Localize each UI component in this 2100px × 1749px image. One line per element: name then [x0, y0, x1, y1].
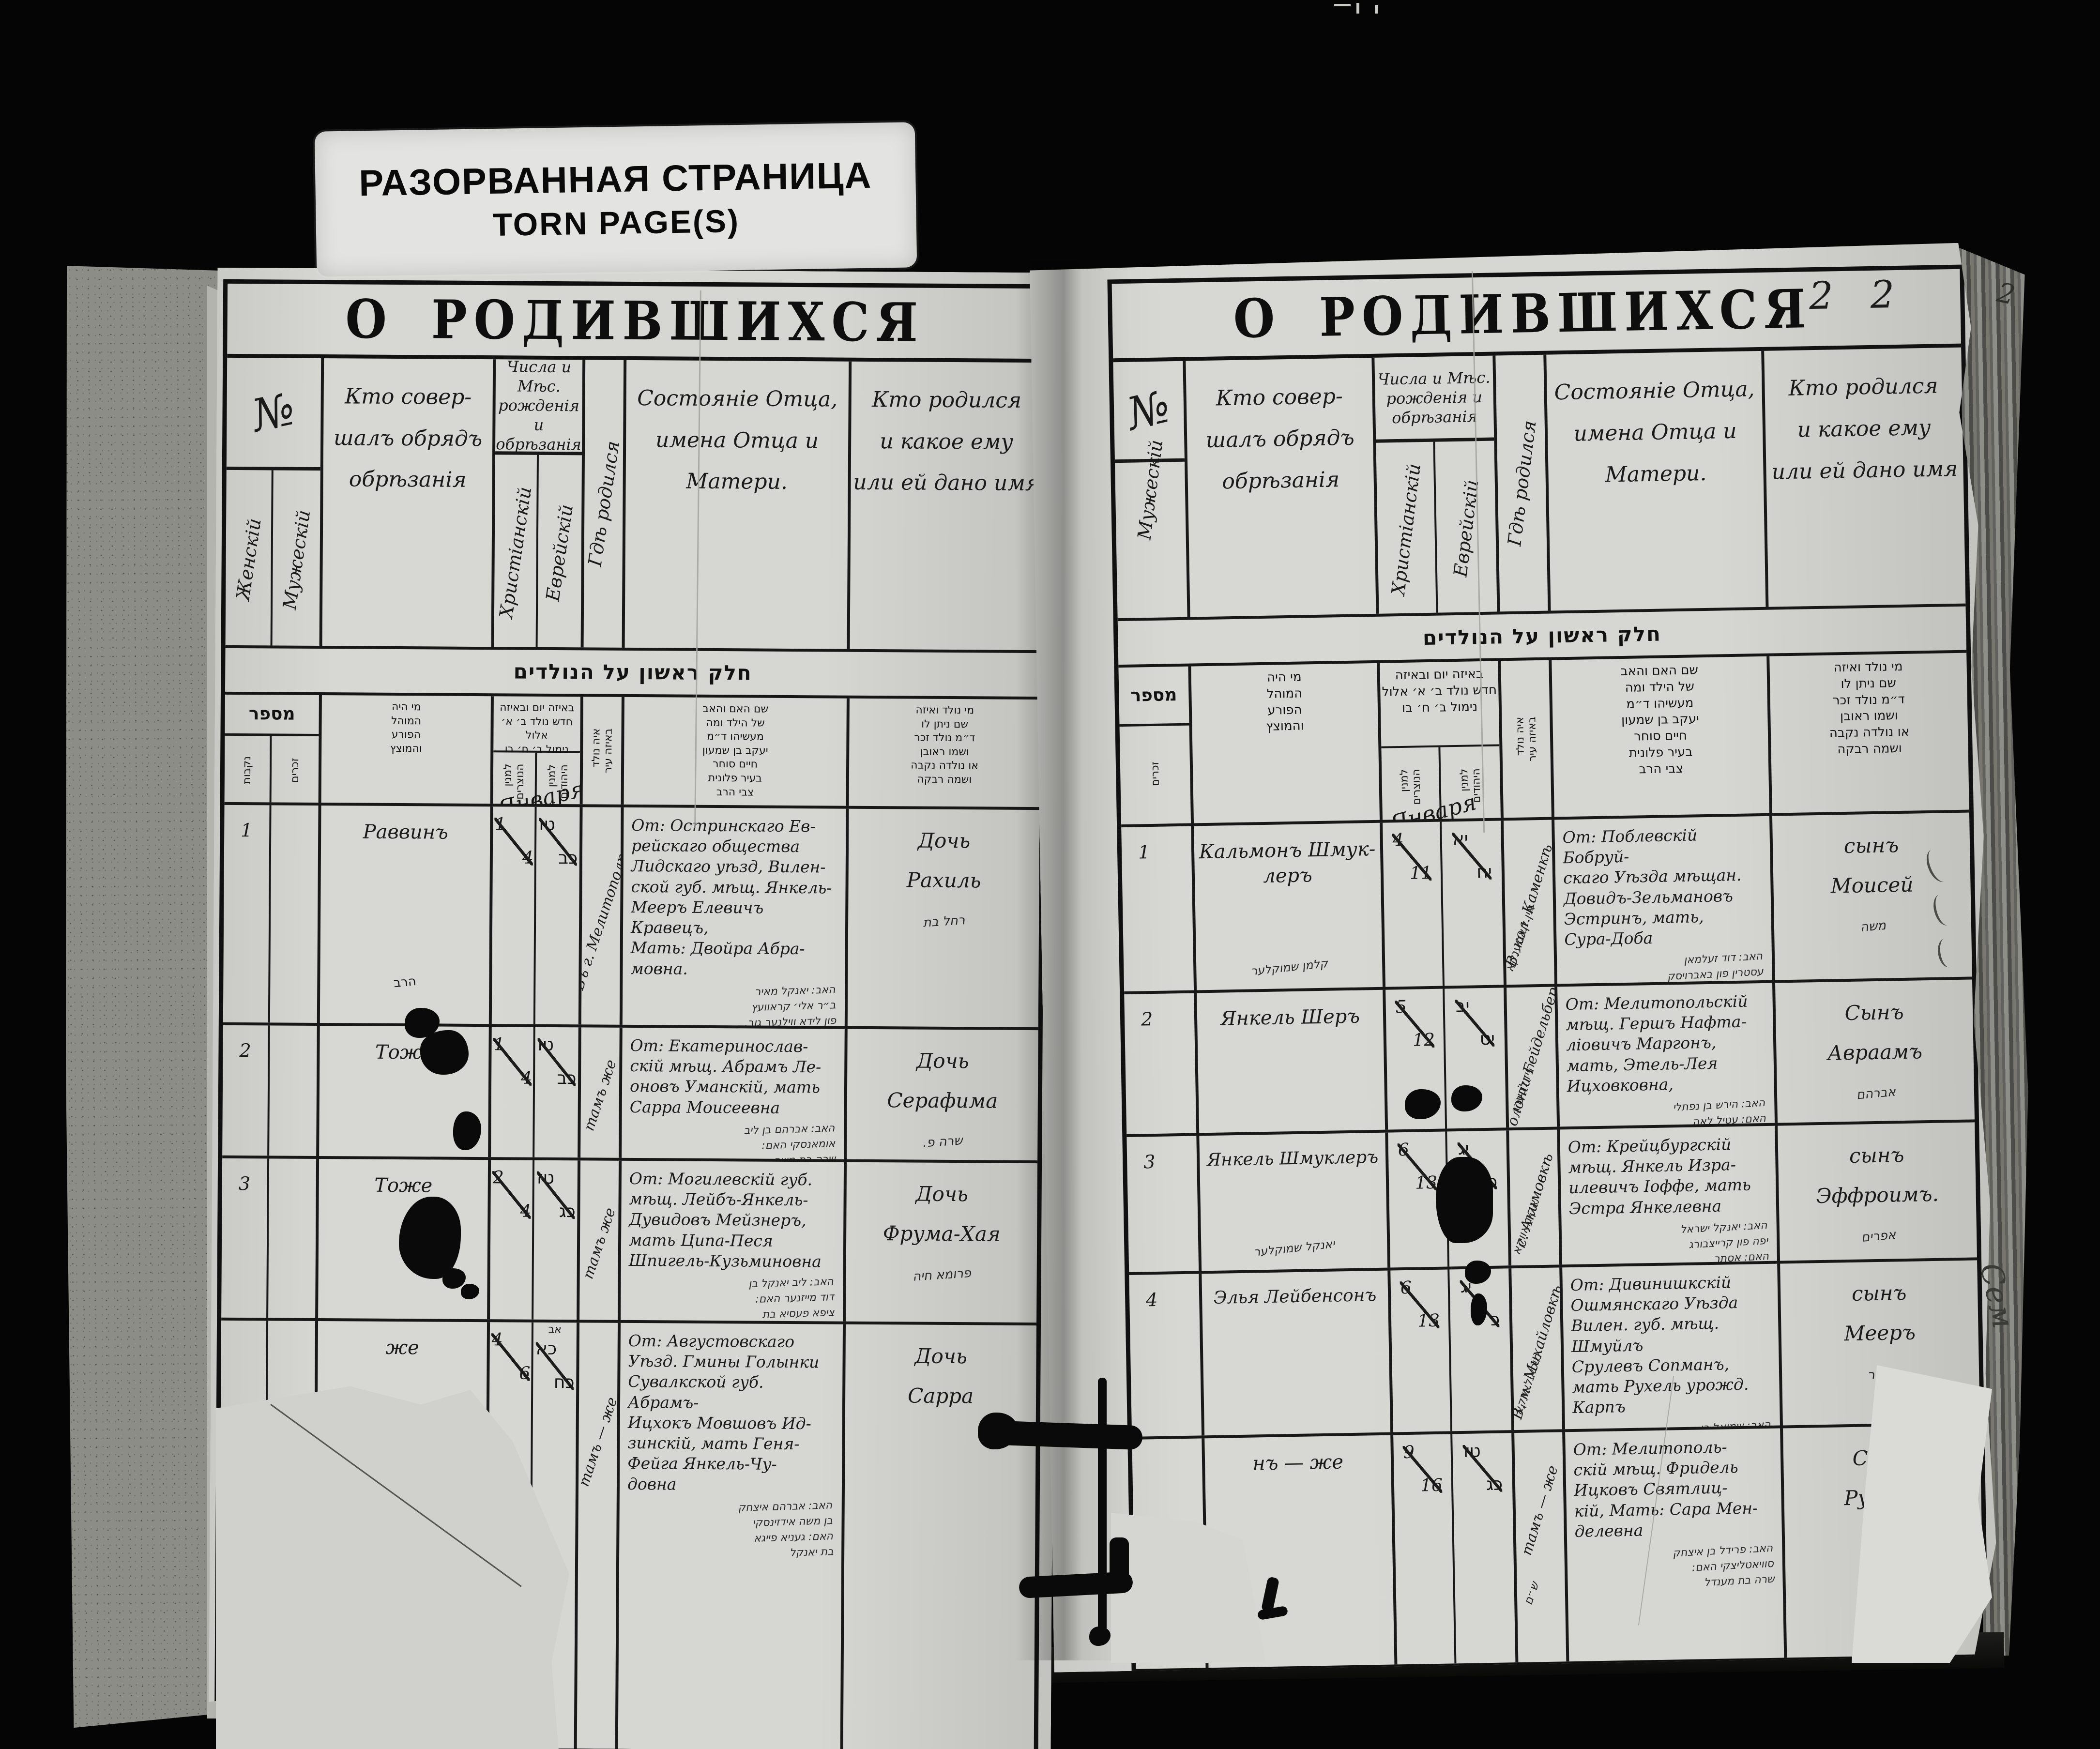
number-symbol: № [248, 383, 300, 442]
torn-page-label-russian: РАЗОРВАННАЯ СТРАНИЦА [359, 154, 872, 204]
parents-entry: От: Мелитополь- скій мѣщ. Фридель Ицковъ… [1565, 1429, 1782, 1544]
hebrew-female: נקבות [241, 756, 253, 784]
jewish-date: טזכג [1461, 1441, 1504, 1496]
child-name: Сынъ Авраамъ [1775, 979, 1974, 1074]
right-row-3: 3 Янкель Шмуклеръ יאנקל שמוקלער 613 יגכ … [1126, 1122, 1977, 1275]
birthplace: Въ г. Мелитополѣ [581, 848, 624, 992]
column-parents: Состояніе Отца, имена Отца и Матери. [1546, 351, 1768, 611]
column-male: Мужескій [1134, 439, 1167, 541]
column-dates: Числа и Мѣс. рожденія и обрѣзанія Христі… [494, 359, 586, 647]
column-performer: Кто совер- шалъ обрядъ обрѣзанія [322, 358, 496, 647]
circumciser: Тоже [319, 1159, 488, 1199]
column-christian-date: Христіанскій [495, 486, 535, 620]
child-name: Дочь Сарра [845, 1324, 1036, 1416]
column-child-name: Кто родился и какое ему или ей дано имя [850, 361, 1043, 650]
left-row-2: 2 Тоже 14 טוכב тамъ же От: Екатеринослав… [222, 1025, 1038, 1163]
column-dates: Числа и Мѣс. рожденія и обрѣзанія Христі… [1374, 355, 1500, 613]
child-name: Дочь Фрума-Хая [846, 1162, 1037, 1254]
row-number: 2 [223, 1025, 268, 1062]
circumciser: же [318, 1321, 487, 1361]
torn-page-label-english: TORN PAGE(S) [492, 202, 740, 243]
jewish-date: טוכב [535, 1035, 578, 1090]
parents-entry: От: Крейцбургскій мѣщ. Янкель Изра- илев… [1560, 1126, 1776, 1221]
scan-artifact [1375, 5, 1378, 14]
page-number: 2 2 [1809, 273, 1907, 319]
christian-date: 613 [1396, 1140, 1439, 1194]
right-register-table: О РОДИВШИХСЯ 2 2 № Мужескій Кто совер- ш… [1107, 265, 1988, 1673]
scan-artifact [1334, 4, 1351, 6]
right-row-1: 1 Кальмонъ Шмук- леръ קלמן שמוקלער 411 י… [1121, 813, 1972, 995]
column-christian-date: Христіанскій [1387, 462, 1425, 596]
row-number: 3 [222, 1158, 267, 1195]
hebrew-column-dates: באיזה יום ובאיזה חדש נולד ב׳ א׳ אלול נימ… [1380, 661, 1504, 820]
birthplace-yiddish: ש״ם [1520, 1580, 1543, 1607]
parents-entry-yiddish: האב: פרידל בן איצחק סוויאטליצקי האם: שרה… [1567, 1536, 1784, 1600]
parents-entry-yiddish: האב: אברהם איצחק בן משה אידזינסקי האם: ג… [619, 1494, 843, 1568]
parents-entry: От: Остринскаго Ев- рейскаго общества Ли… [623, 807, 846, 982]
scan-artifact [1356, 3, 1359, 14]
circumciser-signature: קלמן שמוקלער [1250, 955, 1329, 980]
left-row-3: 3 Тоже 24 טזכג тамъ же От: Могилевскій г… [221, 1158, 1037, 1325]
circumciser: Раввинъ [321, 806, 490, 845]
column-jewish-date: Еврейскій [542, 503, 578, 603]
parents-entry: От: Екатеринослав- скій мѣщ. Абрамъ Ле- … [622, 1028, 845, 1121]
row-number: 4 [1129, 1274, 1199, 1311]
christian-date: 46 [489, 1330, 532, 1384]
parents-entry-yiddish: האב: ליב יאנקל בן דוד מייזנער האם: ציפא … [621, 1270, 844, 1322]
hebrew-column-number: מספר נקבות זכרים [225, 695, 322, 803]
hebrew-male: זכרים [1149, 761, 1161, 786]
column-number: № Мужескій [1113, 361, 1190, 619]
jewish-date: טוכב [537, 815, 579, 869]
row-number: 3 [1126, 1136, 1197, 1173]
row-number: 1 [224, 805, 269, 841]
column-male: Мужескій [278, 509, 314, 611]
column-performer: Кто совер- шалъ обрядъ обрѣзанія [1186, 358, 1379, 617]
child-name-yiddish: פרומא חיה [846, 1247, 1037, 1291]
right-page: О РОДИВШИХСЯ 2 2 № Мужескій Кто совер- ш… [1030, 243, 1998, 1673]
circumciser: Янкель Шмуклеръ [1199, 1133, 1385, 1172]
christian-date: 14 [493, 814, 535, 869]
binding-thread [1098, 1378, 1107, 1634]
torn-page-label: РАЗОРВАННАЯ СТРАНИЦА TORN PAGE(S) [315, 122, 917, 276]
hebrew-male: זכרים [289, 758, 301, 783]
right-row-2: 2 Янкель Шеръ 512 יביט Колоніи Гейдельбе… [1124, 979, 1975, 1137]
parents-entry: От: Поблевскій Бобруй- скаго Уѣзда мѣщан… [1554, 816, 1772, 952]
birthplace: тамъ — же [577, 1395, 621, 1489]
christian-date: 411 [1390, 830, 1433, 884]
circumciser-signature: יאנקל שמוקלער [1253, 1236, 1336, 1261]
hebrew-column-child: מי נולד ואיזה שם ניתן לו ד״מ נולד זכר וש… [849, 699, 1040, 807]
jewish-month-note: אב [548, 1323, 562, 1336]
hebrew-column-parents: שם האם והאב של הילד ומה מעשיהו ד״מ יעקב … [1552, 656, 1772, 817]
ink-blot [420, 1030, 469, 1075]
parents-entry-yiddish: האב: אברהם בן ליב אומאנסקי האם: שרה בת מ… [622, 1117, 845, 1159]
row-number: 2 [1124, 993, 1194, 1031]
circumciser-note: הרב [393, 974, 416, 990]
hebrew-column-where: איה נולד באיזה עיר [1501, 660, 1554, 818]
birthplace: тамъ же [580, 1058, 620, 1133]
binding-thread-knot [1110, 1537, 1129, 1584]
child-name-yiddish: שרה פ. [847, 1114, 1038, 1157]
left-title-row: О РОДИВШИХСЯ [227, 284, 1043, 363]
hebrew-column-child: מי נולד ואיזה שם ניתן לו ד״מ נולד זכר וש… [1769, 653, 1969, 813]
hebrew-column-parents: שם האם והאב של הילד ומה מעשיהו ד״מ יעקב … [624, 697, 850, 806]
jewish-date: כאכח [533, 1339, 576, 1394]
column-number: № Женскій Мужескій [226, 358, 324, 646]
row-number: 1 [1121, 826, 1191, 864]
hebrew-column-number: מספר זכרים [1118, 667, 1194, 825]
column-where-born: Гдѣ родился [1495, 355, 1551, 612]
left-row-1: 1 Раввинъ הרב 14 טוכב Въ г. Мелитополѣ О… [223, 805, 1040, 1030]
child-name: сынъ Мееръ [1780, 1260, 1978, 1354]
christian-date: 512 [1393, 997, 1436, 1051]
christian-date: 613 [1399, 1278, 1441, 1332]
parents-entry-yiddish: האב: יאנקל ישראל יפה פון קרייצבורג האם: … [1561, 1214, 1778, 1264]
christian-date: 916 [1401, 1442, 1444, 1497]
hebrew-column-performer: מי היה המוהל הפורע והמוצץ [1191, 663, 1383, 823]
hebrew-column-dates: באיזה יום ובאיזה חדש נולד ב׳ א׳ אלול נימ… [493, 696, 583, 804]
christian-date: 14 [491, 1034, 533, 1089]
right-hebrew-header: מספר זכרים מי היה המוהל הפורע והמוצץ באי… [1118, 653, 1969, 828]
jewish-date: טזכג [535, 1168, 577, 1223]
row-number [221, 1321, 266, 1336]
page-title: О РОДИВШИХСЯ [345, 288, 925, 354]
birthplace: тамъ — же [1518, 1463, 1562, 1557]
child-name: Дочь Рахиль [848, 809, 1039, 901]
parents-entry: От: Августовскаго Уѣзд. Гмины Голынки Су… [620, 1323, 843, 1498]
left-hebrew-header: מספר נקבות זכרים מי היה המוהל הפורע והמו… [225, 695, 1040, 810]
column-parents: Состояніе Отца, имена Отца и Матери. [625, 360, 852, 649]
column-child-name: Кто родился и какое ему или ей дано имя [1764, 348, 1965, 607]
column-female: Женскій [232, 517, 265, 602]
birthplace: тамъ же [579, 1206, 619, 1281]
right-russian-header: № Мужескій Кто совер- шалъ обрядъ обрѣза… [1113, 348, 1965, 621]
left-russian-header: № Женскій Мужескій Кто совер- шалъ обряд… [226, 358, 1043, 653]
child-name-yiddish: רחל בת [848, 894, 1040, 937]
left-hebrew-band: חלק ראשון על הנולדים [225, 648, 1041, 700]
scanned-register-spread: О РОДИВШИХСЯ № Женскій Мужескій Кто сове… [0, 0, 2100, 1749]
hebrew-column-performer: מי היה המוהל הפורע והמוצץ [321, 695, 494, 804]
ink-blot [1436, 1157, 1493, 1243]
torn-paper-flap [1852, 1365, 1992, 1663]
column-where-born: Гдѣ родился [584, 360, 627, 648]
child-name: сынъ Эффроимъ. [1778, 1122, 1976, 1217]
right-title-row: О РОДИВШИХСЯ 2 2 [1112, 269, 1962, 363]
page-title: О РОДИВШИХСЯ [1233, 278, 1813, 350]
parents-entry-yiddish: האב: יאנקל מאיר ב״ר אלי׳ קראוועץ פון ליד… [623, 978, 846, 1026]
row-number [1132, 1438, 1202, 1454]
birthplace-yiddish: היידלבערג [1507, 1061, 1539, 1115]
birthplace-yiddish: מיכאילאווקא [1511, 1352, 1546, 1417]
parents-entry: От: Мелитопольскій мѣщ. Гершъ Нафта- ліо… [1557, 983, 1774, 1099]
binding-stitch [997, 1421, 1143, 1450]
christian-date: 24 [490, 1168, 533, 1222]
jewish-date: יאיח [1450, 829, 1493, 883]
circumciser: Кальмонъ Шмук- леръ [1194, 823, 1381, 890]
jewish-date: יביט [1453, 996, 1496, 1050]
right-row-4: 4 Элья Лейбенсонъ 613 יגכ В. м. Михайлов… [1129, 1260, 1980, 1440]
hebrew-column-where: איה נולד באיזה עיר [583, 697, 624, 805]
parents-entry: От: Могилевскій губ. мѣщ. Лейбъ-Янкель- … [621, 1161, 844, 1274]
circumciser: Элья Лейбенсонъ [1202, 1271, 1388, 1310]
circumciser: нъ — же [1204, 1435, 1391, 1477]
birthplace-yiddish: אין קאמענקא [1504, 903, 1539, 974]
child-name: Дочь Серафима [847, 1029, 1038, 1121]
circumciser: Янкель Шеръ [1197, 990, 1383, 1032]
birthplace-yiddish: אקימאווקא [1509, 1198, 1542, 1257]
